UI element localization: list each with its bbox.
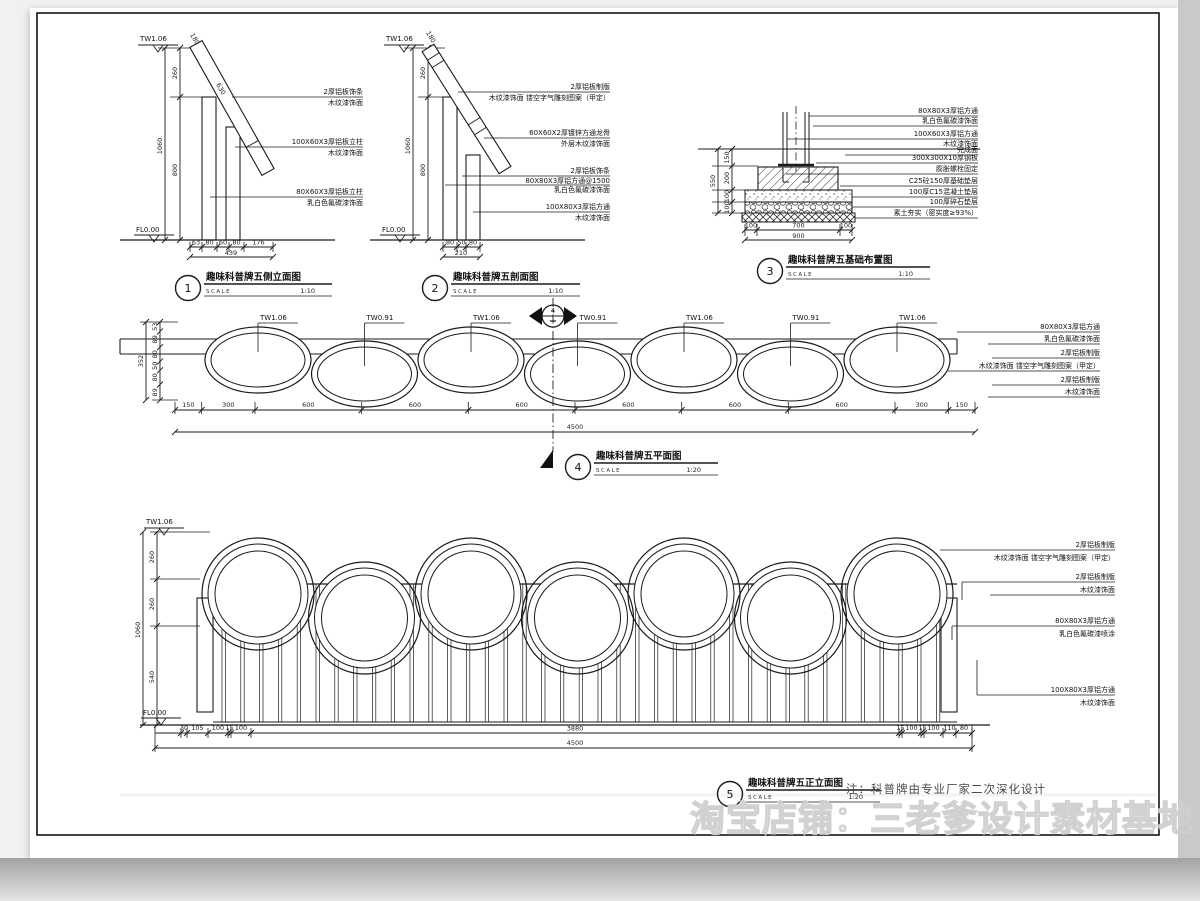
callout-text: 100X80X3厚铝方通: [546, 202, 610, 211]
dim-label: 100: [927, 724, 939, 732]
callout-text: 素土夯实（密实度≥93%）: [894, 208, 978, 217]
dim-label: 63: [192, 239, 200, 247]
level-label: TW1.06: [685, 314, 713, 322]
dim-label: 600: [729, 401, 741, 409]
dim-label: 200: [723, 172, 731, 184]
callout-text: 木纹漆饰面: [328, 148, 363, 157]
callout-text: 100厚碎石垫层: [930, 197, 978, 206]
dim-label: 550: [709, 175, 717, 187]
dim-label: 600: [409, 401, 421, 409]
callout-text: 乳白色氟碳漆饰面: [1044, 334, 1100, 343]
callout-text: 木纹漆饰面 镂空字气雕刻图案（甲定）: [489, 93, 610, 102]
callout-text: 300X300X10厚钢板: [912, 153, 978, 162]
detail-number: 2: [432, 282, 439, 295]
level-label: TW0.91: [366, 314, 394, 322]
callout-text: 80X80X3厚铝方通: [1040, 322, 1100, 331]
dim-label: 100: [723, 201, 731, 213]
callout-text: 80X80X3厚铝方通@1500: [525, 176, 610, 185]
level-label: TW0.91: [579, 314, 607, 322]
dim-label: 176: [252, 239, 264, 247]
dim-label: 1060: [404, 138, 412, 155]
dim-label: 4500: [567, 423, 584, 431]
dim-label: 105: [191, 724, 203, 732]
scale-label: SCALE: [788, 272, 813, 278]
dim-label: 80: [232, 239, 240, 247]
callout-text: 80X80X3厚铝方通: [1055, 616, 1115, 625]
callout-text: 2厚铝板制版: [1076, 540, 1115, 549]
dim-label: 110: [943, 724, 955, 732]
dim-label: 53: [151, 323, 159, 331]
scale-value: 1:10: [300, 287, 315, 295]
callout-text: 乳白色氟碳漆饰面: [307, 198, 363, 207]
dim-label: 900: [792, 232, 804, 240]
level-label: TW1.06: [145, 518, 173, 526]
callout-text: 木纹漆饰面: [575, 213, 610, 222]
dim-label: 180: [424, 30, 437, 45]
callout-text: 2厚铝板饰条: [571, 166, 610, 175]
dim-label: 60: [219, 239, 227, 247]
level-label: TW1.06: [898, 314, 926, 322]
dim-label: 800: [419, 164, 427, 176]
cad-canvas: TW1.06FL0.0026010608001806302厚铝板饰条木纹漆饰面1…: [0, 0, 1200, 901]
dim-label: 100: [723, 190, 731, 202]
callout-text: 100X60X3厚铝板立柱: [292, 137, 363, 146]
watermark-text: 淘宝店铺：三老爹设计素材基地: [690, 800, 1194, 840]
callout-text: 80X60X3厚铝板立柱: [296, 187, 363, 196]
dim-label: 3880: [567, 725, 584, 733]
detail-title: 趣味科普牌五侧立面图: [205, 271, 301, 283]
detail-title: 趣味科普牌五基础布置图: [787, 254, 893, 266]
scale-value: 1:10: [548, 287, 563, 295]
dim-label: 352: [137, 355, 145, 367]
dim-label: 700: [792, 222, 804, 230]
dim-label: 100: [235, 724, 247, 732]
dim-label: 89: [151, 335, 159, 343]
dim-label: 300: [915, 401, 927, 409]
callout-text: 2厚铝板制版: [1076, 572, 1115, 581]
callout-text: 100X80X3厚铝方通: [1051, 685, 1115, 694]
drawing-1-side-elevation: TW1.06FL0.0026010608001806302厚铝板饰条木纹漆饰面1…: [120, 32, 363, 301]
level-label: TW0.91: [792, 314, 820, 322]
dim-label: 30: [180, 724, 188, 732]
callout-text: 2厚铝板制版: [1061, 348, 1100, 357]
dim-label: 15: [918, 724, 926, 732]
dim-label: 80: [469, 239, 477, 247]
dim-label: 15: [896, 724, 904, 732]
callout-text: 80X80X3厚铝方通: [918, 106, 978, 115]
dim-label: 50: [457, 239, 465, 247]
drawing-5-front-elevation: TW1.06FL0.002602605401060301051001510038…: [134, 518, 1115, 807]
callout-text: 木纹漆饰面: [328, 98, 363, 107]
dim-label: 150: [955, 401, 967, 409]
dim-label: 800: [171, 164, 179, 176]
callout-text: 木纹漆饰面: [1065, 387, 1100, 396]
callout-text: 2厚铝板制版: [1061, 375, 1100, 384]
level-label: TW1.06: [472, 314, 500, 322]
callout-text: C25砼150厚基础垫层: [909, 176, 978, 185]
dim-label: 300: [222, 401, 234, 409]
drawing-3-foundation: 15020010010055010070010090080X80X3厚铝方通乳白…: [698, 106, 980, 284]
dim-label: 80: [960, 724, 968, 732]
level-label: TW1.06: [259, 314, 287, 322]
detail-title: 趣味科普牌五平面图: [595, 450, 682, 462]
callout-text: 乳白色氟碳漆饰面: [554, 185, 610, 194]
callout-text: 2厚铝板制版: [571, 82, 610, 91]
dim-label: 600: [302, 401, 314, 409]
dim-label: 540: [148, 671, 156, 683]
dim-label: 260: [171, 67, 179, 79]
callout-text: 木纹漆饰面: [1080, 698, 1115, 707]
detail-number: 4: [575, 461, 582, 474]
scale-label: SCALE: [596, 468, 621, 474]
level-label: FL0.00: [382, 226, 406, 234]
dim-label: 50: [151, 362, 159, 370]
callout-text: 木纹漆饰面 镂空字气雕刻图案（甲定）: [994, 553, 1115, 562]
level-label: FL0.00: [136, 226, 160, 234]
viewer-stage: TW1.06FL0.0026010608001806302厚铝板饰条木纹漆饰面1…: [0, 0, 1200, 901]
drawing-4-plan: TW1.06TW0.91TW1.06TW0.91TW1.06TW0.91TW1.…: [120, 298, 1100, 480]
drawing-2-section: TW1.06FL0.0026010608001802厚铝板制版木纹漆饰面 镂空字…: [370, 30, 610, 301]
dim-label: 80: [151, 373, 159, 381]
dim-label: 600: [622, 401, 634, 409]
callout-text: 木纹漆饰面 镂空字气雕刻图案（甲定）: [979, 361, 1100, 370]
callout-text: 完成面: [957, 145, 978, 154]
scale-label: SCALE: [206, 289, 231, 295]
callout-text: 100厚C15混凝土垫层: [909, 187, 978, 196]
dim-label: 80: [151, 350, 159, 358]
detail-title: 趣味科普牌五正立面图: [747, 777, 843, 789]
dim-label: 80: [205, 239, 213, 247]
dim-label: 260: [419, 67, 427, 79]
dim-label: 100: [745, 222, 757, 230]
dim-label: 100: [212, 724, 224, 732]
dim-label: 1060: [156, 138, 164, 155]
callout-text: 100X60X3厚铝方通: [914, 129, 978, 138]
dim-label: 4500: [567, 739, 584, 747]
dim-label: 260: [148, 598, 156, 610]
design-note: 注：科普牌由专业厂家二次深化设计: [846, 782, 1046, 796]
callout-text: 2厚铝板饰条: [324, 87, 363, 96]
dim-label: 600: [515, 401, 527, 409]
level-label: FL0.00: [143, 709, 167, 717]
level-label: TW1.06: [385, 35, 413, 43]
dim-label: 80: [446, 239, 454, 247]
callout-text: 乳白色氟碳漆喷涂: [1059, 629, 1115, 638]
dim-label: 150: [182, 401, 194, 409]
dim-label: 15: [225, 724, 233, 732]
scale-value: 1:20: [686, 466, 701, 474]
dim-label: 150: [723, 151, 731, 163]
detail-number: 3: [767, 265, 774, 278]
callout-text: 木纹漆饰面: [1080, 585, 1115, 594]
detail-title: 趣味科普牌五剖面图: [452, 271, 539, 283]
dim-label: 100: [905, 724, 917, 732]
dim-label: 100: [840, 222, 852, 230]
level-label: TW1.06: [139, 35, 167, 43]
dim-label: 260: [148, 551, 156, 563]
dim-label: 1060: [134, 622, 142, 639]
callout-text: 乳白色氟碳漆饰面: [922, 116, 978, 125]
dim-label: 210: [455, 249, 467, 257]
dim-label: 600: [835, 401, 847, 409]
callout-text: 膨胀螺栓固定: [936, 164, 978, 173]
scale-label: SCALE: [453, 289, 478, 295]
detail-number: 1: [185, 282, 192, 295]
dim-label: 439: [225, 249, 237, 257]
dim-label: 89: [151, 388, 159, 396]
callout-text: 外层木纹漆饰面: [561, 139, 610, 148]
callout-text: 60X60X2厚镀锌方通龙骨: [529, 128, 610, 137]
scale-value: 1:10: [898, 270, 913, 278]
